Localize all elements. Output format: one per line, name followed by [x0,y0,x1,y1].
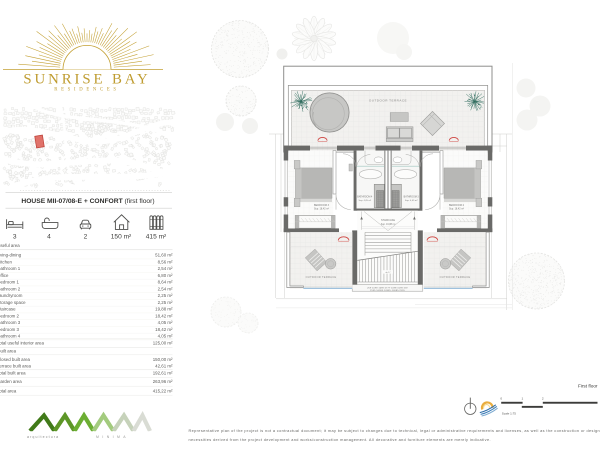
svg-text:2: 2 [542,397,544,401]
svg-text:2,54 m²: 2,54 m² [158,286,173,291]
svg-text:42,61 m²: 42,61 m² [155,363,173,368]
svg-text:Representative plan of the pro: Representative plan of the project is no… [189,429,600,433]
svg-text:storage space: storage space [0,300,26,305]
svg-text:1: 1 [522,397,524,401]
svg-text:263,96 m²: 263,96 m² [153,379,173,384]
svg-text:closed built area: closed built area [0,357,31,362]
svg-text:Sup. 18,42 m²: Sup. 18,42 m² [314,208,329,211]
svg-text:3: 3 [13,233,17,240]
svg-text:terrace built area: terrace built area [0,363,32,368]
svg-text:laundryroom: laundryroom [0,293,23,298]
svg-text:BATHROOM 3: BATHROOM 3 [404,195,420,198]
svg-text:18,42 m²: 18,42 m² [155,327,173,332]
svg-text:total built area: total built area [0,371,26,376]
svg-text:2,25 m²: 2,25 m² [158,293,173,298]
svg-text:BATHROOM 4: BATHROOM 4 [357,195,373,198]
svg-text:0: 0 [500,397,502,401]
svg-text:STAIRCASE: STAIRCASE [381,219,395,222]
svg-text:OUTDOOR TERRACE: OUTDOOR TERRACE [306,275,337,279]
svg-text:2,25 m²: 2,25 m² [158,300,173,305]
svg-text:First floor: First floor [578,383,598,388]
svg-text:SUNRISE BAY: SUNRISE BAY [23,72,150,88]
svg-text:150 m²: 150 m² [111,233,132,240]
svg-text:arquitectura: arquitectura [27,435,59,439]
svg-text:bathroom 2: bathroom 2 [0,286,21,291]
svg-text:2595·10985·10985·10985·2595: 2595·10985·10985·10985·2595 [370,290,405,292]
svg-text:bathroom 4: bathroom 4 [0,334,21,339]
svg-text:useful area: useful area [0,243,20,248]
svg-text:18,42 m²: 18,42 m² [155,313,173,318]
svg-text:bedroom 2: bedroom 2 [0,313,20,318]
svg-text:dn 17: dn 17 [385,272,391,274]
svg-text:built area: built area [0,348,17,353]
svg-text:Sup. 4,05 m²: Sup. 4,05 m² [405,199,418,202]
svg-text:bathroom 3: bathroom 3 [0,320,21,325]
svg-text:2,54 m²: 2,54 m² [158,266,173,271]
svg-text:2: 2 [84,233,88,240]
svg-text:4,05 m²: 4,05 m² [158,334,173,339]
svg-text:Sup. 19,88 m²: Sup. 19,88 m² [381,223,396,226]
svg-text:MINIMA: MINIMA [96,435,129,439]
svg-text:Sup. 4,05 m²: Sup. 4,05 m² [359,199,372,202]
svg-text:150,00 m²: 150,00 m² [153,357,173,362]
svg-text:415 m²: 415 m² [146,233,167,240]
svg-text:4,05 m²: 4,05 m² [158,320,173,325]
svg-text:bedroom 3: bedroom 3 [0,327,20,332]
svg-text:4: 4 [47,233,51,240]
svg-text:8,56 m²: 8,56 m² [158,259,173,264]
svg-text:total area: total area [0,388,17,393]
svg-text:BEDROOM 2: BEDROOM 2 [449,204,465,207]
svg-text:259·1098·1098·2777·1098·1098·2: 259·1098·1098·2777·1098·1098·259 [367,287,408,289]
svg-text:6,80 m²: 6,80 m² [158,273,173,278]
svg-text:125,00 m²: 125,00 m² [153,341,173,346]
svg-text:bedroom 1: bedroom 1 [0,280,20,285]
svg-text:BEDROOM 3: BEDROOM 3 [314,204,330,207]
svg-text:garden area: garden area [0,379,22,384]
svg-text:office: office [0,273,9,278]
svg-text:Scale 1:75: Scale 1:75 [502,412,517,416]
svg-text:OUTDOOR TERRACE: OUTDOOR TERRACE [369,99,407,103]
svg-text:192,61 m²: 192,61 m² [153,371,173,376]
svg-text:HOUSE MII-07/08-E + CONFORT (: HOUSE MII-07/08-E + CONFORT (first floor… [21,198,154,205]
svg-text:8,64 m²: 8,64 m² [158,280,173,285]
svg-text:OUTDOOR TERRACE: OUTDOOR TERRACE [440,275,471,279]
svg-text:staircase: staircase [0,307,16,312]
svg-text:51,60 m²: 51,60 m² [155,253,173,258]
svg-text:19,88 m²: 19,88 m² [155,307,173,312]
svg-text:bathroom 1: bathroom 1 [0,266,21,271]
svg-text:kitchen: kitchen [0,259,12,264]
svg-text:living-dining: living-dining [0,253,22,258]
svg-text:Sup. 18,42 m²: Sup. 18,42 m² [449,208,464,211]
svg-text:RESIDENCES: RESIDENCES [54,88,119,93]
svg-text:415,22 m²: 415,22 m² [153,388,173,393]
svg-text:necessities derived from the p: necessities derived from the project dev… [189,438,491,442]
svg-text:total useful interior area: total useful interior area [0,341,44,346]
